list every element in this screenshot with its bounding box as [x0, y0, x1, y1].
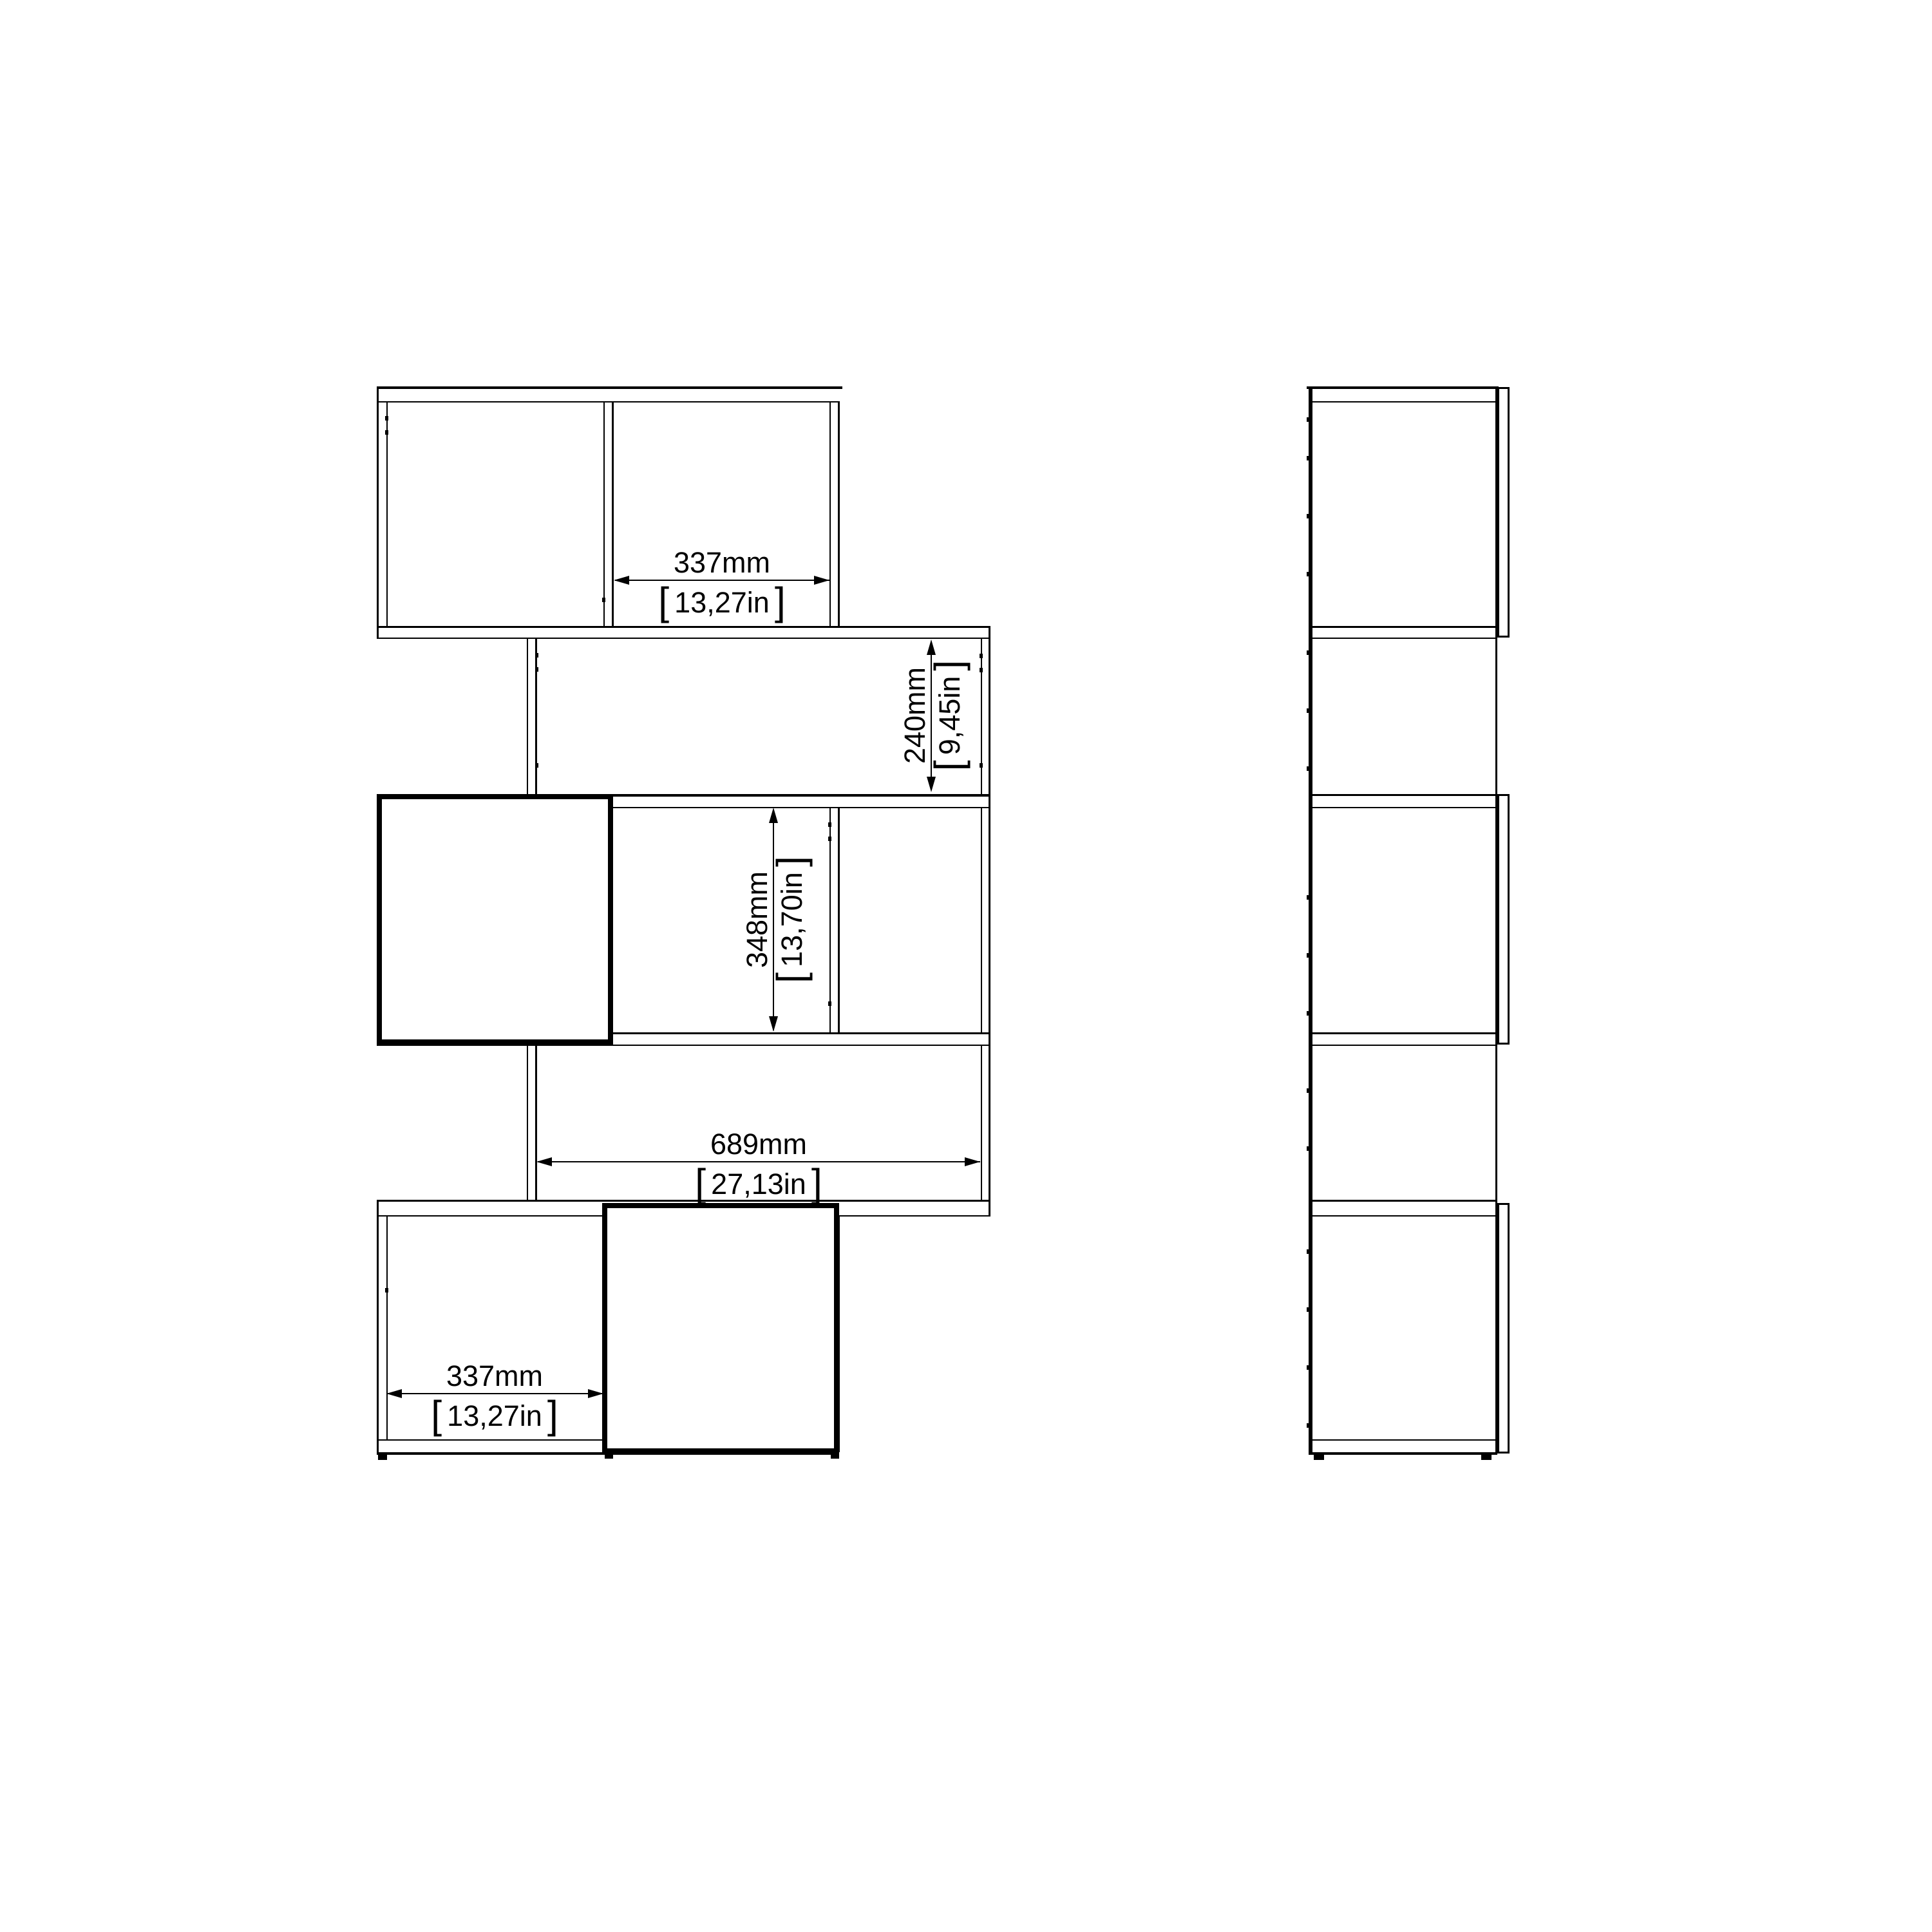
dowel-mark	[1307, 1249, 1310, 1254]
side-top-door-profile	[1497, 387, 1510, 638]
dowel-mark	[535, 667, 538, 672]
row1-divider-left	[603, 401, 605, 626]
foot-side-right	[1481, 1455, 1492, 1460]
row3-divider-right	[838, 807, 840, 1032]
lower-door-panel	[602, 1203, 839, 1454]
row4-right-outer	[989, 1045, 990, 1215]
row4-left-outer	[527, 1045, 528, 1200]
dowel-mark	[1307, 1365, 1310, 1370]
dowel-mark	[1307, 953, 1310, 958]
dowel-mark	[828, 837, 831, 841]
row1-top-edge	[377, 386, 842, 389]
dowel-mark	[535, 763, 538, 768]
row1-divider-right	[612, 401, 614, 626]
side-shelf1-bottom	[1312, 638, 1495, 639]
upper-door-panel	[377, 794, 613, 1045]
dowel-mark	[535, 653, 538, 658]
dim-arrow-up	[769, 808, 778, 823]
shelfD-top	[377, 1200, 990, 1202]
dowel-mark	[1307, 895, 1310, 900]
row2-left-outer	[527, 638, 528, 794]
side-shelf4-top	[1312, 1200, 1495, 1202]
side-shelf2-top	[1312, 794, 1495, 796]
dowel-mark	[1307, 708, 1310, 713]
dim-arrow-up	[927, 639, 936, 655]
row1-left-outer	[377, 386, 379, 638]
dim-arrow-left	[614, 576, 629, 585]
dim-label-inches: [9,45in]	[932, 660, 967, 771]
dim-label-mm: 337mm	[674, 546, 770, 580]
side-shelf3-top	[1312, 1032, 1495, 1034]
side-shelf2-bottom	[1312, 807, 1495, 808]
row1-top-inner	[377, 401, 839, 402]
dowel-mark	[1307, 1088, 1310, 1093]
dim-arrow-right	[965, 1157, 980, 1166]
dowel-mark	[828, 1001, 831, 1006]
dim-label-mm: 348mm	[741, 871, 774, 968]
dim-line	[386, 1393, 603, 1394]
foot-front-right	[831, 1454, 839, 1459]
dim-arrow-right	[814, 576, 829, 585]
technical-drawing-canvas: 337mm [13,27in] 240mm [9,45in] 348mm [13…	[0, 0, 1932, 1932]
dim-line	[538, 1161, 980, 1162]
side-shelf1-top	[1312, 626, 1495, 628]
dowel-mark	[385, 1288, 388, 1293]
dim-arrow-left	[536, 1157, 552, 1166]
side-back-edge-bold	[1309, 386, 1312, 1455]
dim-arrow-down	[927, 777, 936, 792]
row3-right-outer	[989, 807, 990, 1045]
dim-label-mm: 240mm	[898, 667, 932, 764]
row2-right-outer	[989, 626, 990, 807]
row5-left-outer	[377, 1215, 379, 1455]
dowel-mark	[828, 822, 831, 827]
foot-front-middle	[605, 1454, 613, 1459]
dowel-mark	[1307, 650, 1310, 655]
row5-left-inner	[386, 1215, 388, 1439]
dim-arrow-down	[769, 1016, 778, 1032]
row2-right-inner	[981, 638, 982, 794]
dowel-mark	[1307, 1146, 1310, 1151]
dim-label-inches: [13,70in]	[774, 856, 809, 983]
row4-right-inner	[981, 1045, 982, 1200]
foot-side-left	[1314, 1455, 1324, 1460]
side-top-edge	[1307, 386, 1499, 389]
dowel-mark	[1307, 417, 1310, 422]
dim-label-inches: [13,27in]	[431, 1398, 558, 1433]
row3-right-inner	[981, 807, 982, 1032]
row1-right-outer	[838, 401, 840, 626]
foot-front-left	[378, 1455, 387, 1460]
shelfD-left-cap	[377, 1200, 379, 1215]
side-bottom-inner	[1311, 1439, 1495, 1441]
dim-label-inches: [13,27in]	[658, 585, 785, 620]
shelfA-bottom	[377, 638, 990, 639]
dowel-mark	[1307, 572, 1310, 576]
dowel-mark	[602, 598, 605, 602]
dim-arrow-right	[588, 1389, 603, 1398]
dowel-mark	[980, 654, 983, 658]
shelfC-bottom	[377, 1045, 990, 1046]
dim-arrow-left	[386, 1389, 402, 1398]
dim-label-inches: [27,13in]	[695, 1166, 822, 1201]
dowel-mark	[385, 416, 388, 421]
dowel-mark	[1307, 1307, 1310, 1312]
side-top-inner	[1312, 401, 1495, 402]
dowel-mark	[1307, 766, 1310, 771]
dowel-mark	[1307, 1011, 1310, 1016]
side-shelf4-bottom	[1312, 1215, 1495, 1217]
dim-label-mm: 337mm	[446, 1359, 543, 1393]
dowel-mark	[385, 430, 388, 435]
dowel-mark	[1307, 514, 1310, 518]
dowel-mark	[1307, 1423, 1310, 1428]
dowel-mark	[980, 668, 983, 672]
dim-label-mm: 689mm	[710, 1128, 807, 1161]
row1-right-inner	[829, 401, 831, 626]
row4-left-inner	[535, 1045, 537, 1200]
side-bottom-edge	[1309, 1452, 1497, 1455]
dim-line	[615, 580, 829, 581]
dowel-mark	[1307, 456, 1310, 460]
dowel-mark	[980, 763, 983, 768]
side-lower-door-profile	[1497, 1203, 1510, 1454]
side-upper-door-profile	[1497, 794, 1510, 1045]
row2-left-inner	[535, 638, 537, 794]
side-shelf3-bottom	[1312, 1045, 1495, 1046]
row1-left-inner	[386, 401, 388, 626]
shelfA-top	[377, 626, 990, 628]
